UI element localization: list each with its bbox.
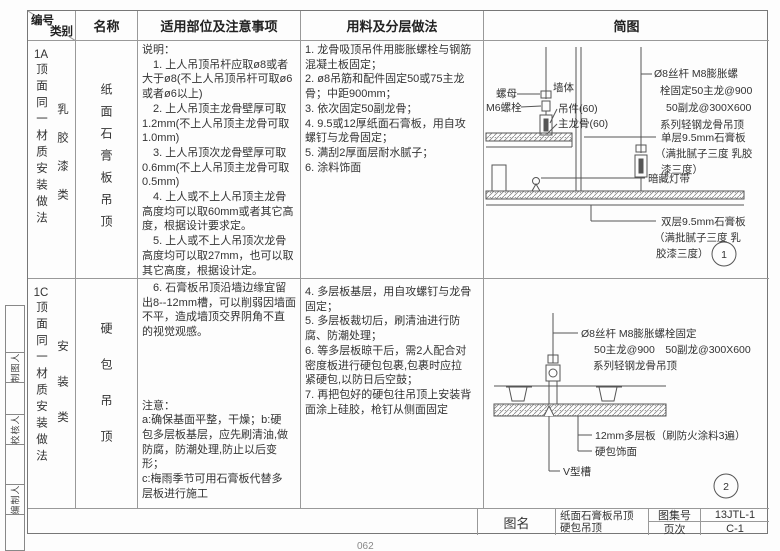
row-1C-category-wrap: 安装类 <box>54 279 70 508</box>
drawing-name-label: 图名 <box>503 513 529 532</box>
header-diagram: 简图 <box>484 11 769 41</box>
drawing-name-line2: 硬包吊顶 <box>560 522 648 534</box>
row-1A-notes-cell: 说明： 1. 上人吊顶吊杆应取ø8或者 大于ø8(不上人吊顶吊杆可取ø6 或者ø… <box>138 41 301 279</box>
m6-bolt-label: M6螺栓 <box>486 101 522 114</box>
header-materials-label: 用料及分层做法 <box>346 16 437 35</box>
header-notes: 适用部位及注意事项 <box>138 11 301 41</box>
row-1A-materials: 1. 龙骨吸顶吊件用膨胀螺栓与钢筋 混凝土板固定； 2. ø8吊筋和配件固定50… <box>301 41 483 175</box>
rod-note-line2: 50主龙@900 50副龙@300X600 <box>594 343 751 356</box>
row-1A-method-label: 顶面同一材质安装做法 <box>33 63 49 228</box>
atlas-number-label-cell: 图集号 <box>649 509 701 522</box>
row-1A-number-cell: 1A 顶面同一材质安装做法 乳胶漆类 <box>28 41 76 279</box>
row-1A-diagram-cell: 螺母 M6螺栓 墙体 吊件(60) 主龙骨(60) Ø8丝杆 M8膨胀螺 栓固定… <box>484 41 769 279</box>
header-name: 名称 <box>76 11 138 41</box>
row-1C-name: 硬包吊顶 <box>98 322 115 466</box>
drawing-sheet: 制图人 校核人 编制人 编号 类别 名称 适用部位及注意事项 用料及分层做法 简… <box>0 0 780 551</box>
plywood-label: 12mm多层板（刷防火涂料3遍） <box>595 429 746 442</box>
single-board-line1: 单层9.5mm石膏板 <box>661 131 746 144</box>
row-1C-materials: 4. 多层板基层，用自攻螺钉与龙骨 固定； 5. 多层板裁切后，刷清油进行防 腐… <box>301 279 483 417</box>
double-board-line3: 胶漆三度） <box>656 247 709 260</box>
detail-number-1: 1 <box>721 249 727 261</box>
row-1C-number-cell: 1C 顶面同一材质安装做法 安装类 <box>28 279 76 509</box>
row-1A-code: 1A <box>34 49 48 61</box>
atlas-number-label: 图集号 <box>658 509 691 522</box>
rod-note-line2: 栓固定50主龙@900 <box>660 84 753 97</box>
header-category-label: 类别 <box>50 23 73 39</box>
signoff-checker: 校核人 <box>6 414 24 445</box>
row-1A-number-block: 1A 顶面同一材质安装做法 <box>33 41 49 278</box>
titleblock-name-cell: 纸面石膏板吊顶 硬包吊顶 <box>556 509 649 535</box>
rod-note-line3: 50副龙@300X600 <box>666 101 752 114</box>
row-1C-number-block: 1C 顶面同一材质安装做法 <box>33 279 49 508</box>
rod-note-line4: 系列轻钢龙骨吊顶 <box>660 118 744 131</box>
row-1A-materials-cell: 1. 龙骨吸顶吊件用膨胀螺栓与钢筋 混凝土板固定； 2. ø8吊筋和配件固定50… <box>301 41 484 279</box>
titleblock-name-label-cell: 图名 <box>478 509 556 535</box>
row-1A-category-wrap: 乳胶漆类 <box>54 41 70 278</box>
signoff-strip: 制图人 校核人 编制人 <box>5 305 25 551</box>
header-materials: 用料及分层做法 <box>301 11 484 41</box>
cove-light-label: 暗藏灯带 <box>648 172 690 185</box>
single-board-line2: （满批腻子三度 乳胶 <box>655 147 753 160</box>
row-1A-name: 纸面石膏板吊顶 <box>98 83 115 237</box>
sheet-page-number: 062 <box>357 541 374 551</box>
header-name-label: 名称 <box>93 16 119 35</box>
signoff-compiler: 编制人 <box>6 484 24 515</box>
header-diagram-label: 简图 <box>613 16 639 35</box>
header-no-category: 编号 类别 <box>28 11 76 41</box>
signoff-compiler-label: 编制人 <box>9 484 22 514</box>
row-1A-name-cell: 纸面石膏板吊顶 <box>76 41 138 279</box>
row-1C-name-cell: 硬包吊顶 <box>76 279 138 509</box>
rod-note-line1: Ø8丝杆 M8膨胀螺 <box>654 67 739 80</box>
v-groove-label: V型槽 <box>563 465 592 478</box>
gypsum-ceiling-detail-diagram: 螺母 M6螺栓 墙体 吊件(60) 主龙骨(60) Ø8丝杆 M8膨胀螺 栓固定… <box>484 41 769 279</box>
row-1C-notes-cell: 6. 石膏板吊顶沿墙边缘宜留 出8--12mm槽，可以削弱因墙面 不平，造成墙顶… <box>138 279 301 509</box>
row-1C-method-label: 顶面同一材质安装做法 <box>33 301 49 466</box>
page-label: 页次 <box>664 522 686 535</box>
drawing-name-line1: 纸面石膏板吊顶 <box>560 510 648 522</box>
row-1C-code: 1C <box>34 287 49 299</box>
rod-note-line1: Ø8丝杆 M8膨胀螺栓固定 <box>581 327 697 340</box>
signoff-checker-label: 校核人 <box>9 414 22 444</box>
rod-note-line3: 系列轻钢龙骨吊顶 <box>593 359 677 372</box>
header-notes-label: 适用部位及注意事项 <box>160 16 277 35</box>
row-1A-category: 乳胶漆类 <box>54 103 70 217</box>
atlas-number-value-cell: 13JTL-1 <box>701 509 769 522</box>
row-1C-materials-cell: 4. 多层板基层，用自攻螺钉与龙骨 固定； 5. 多层板裁切后，刷清油进行防 腐… <box>301 279 484 509</box>
row-1A-notes: 说明： 1. 上人吊顶吊杆应取ø8或者 大于ø8(不上人吊顶吊杆可取ø6 或者ø… <box>138 41 300 278</box>
detail-number-2: 2 <box>723 481 729 493</box>
page-label-cell: 页次 <box>649 522 701 535</box>
page-value-cell: C-1 <box>701 522 769 535</box>
nut-label: 螺母 <box>496 88 517 100</box>
upholstered-ceiling-detail-diagram: Ø8丝杆 M8膨胀螺栓固定 50主龙@900 50副龙@300X600 系列轻钢… <box>484 279 769 509</box>
detail-table: 编号 类别 名称 适用部位及注意事项 用料及分层做法 简图 1A 顶面同一材质安… <box>27 10 768 534</box>
hanger-clip-label: 吊件(60) <box>558 103 598 115</box>
double-board-line1: 双层9.5mm石膏板 <box>661 215 746 228</box>
row-1C-notes: 6. 石膏板吊顶沿墙边缘宜留 出8--12mm槽，可以削弱因墙面 不平，造成墙顶… <box>138 279 300 502</box>
double-board-line2: （满批腻子三度 乳 <box>654 231 741 244</box>
row-1C-category: 安装类 <box>54 340 70 447</box>
titleblock-empty-cell <box>28 509 478 535</box>
atlas-number-value: 13JTL-1 <box>715 509 755 521</box>
signoff-drafter-label: 制图人 <box>9 352 22 382</box>
upholstery-finish-label: 硬包饰面 <box>595 445 637 458</box>
wall-label: 墙体 <box>553 81 574 94</box>
row-1C-diagram-cell: Ø8丝杆 M8膨胀螺栓固定 50主龙@900 50副龙@300X600 系列轻钢… <box>484 279 769 509</box>
signoff-drafter: 制图人 <box>6 352 24 383</box>
page-value: C-1 <box>726 523 744 535</box>
main-runner-label: 主龙骨(60) <box>558 117 608 130</box>
